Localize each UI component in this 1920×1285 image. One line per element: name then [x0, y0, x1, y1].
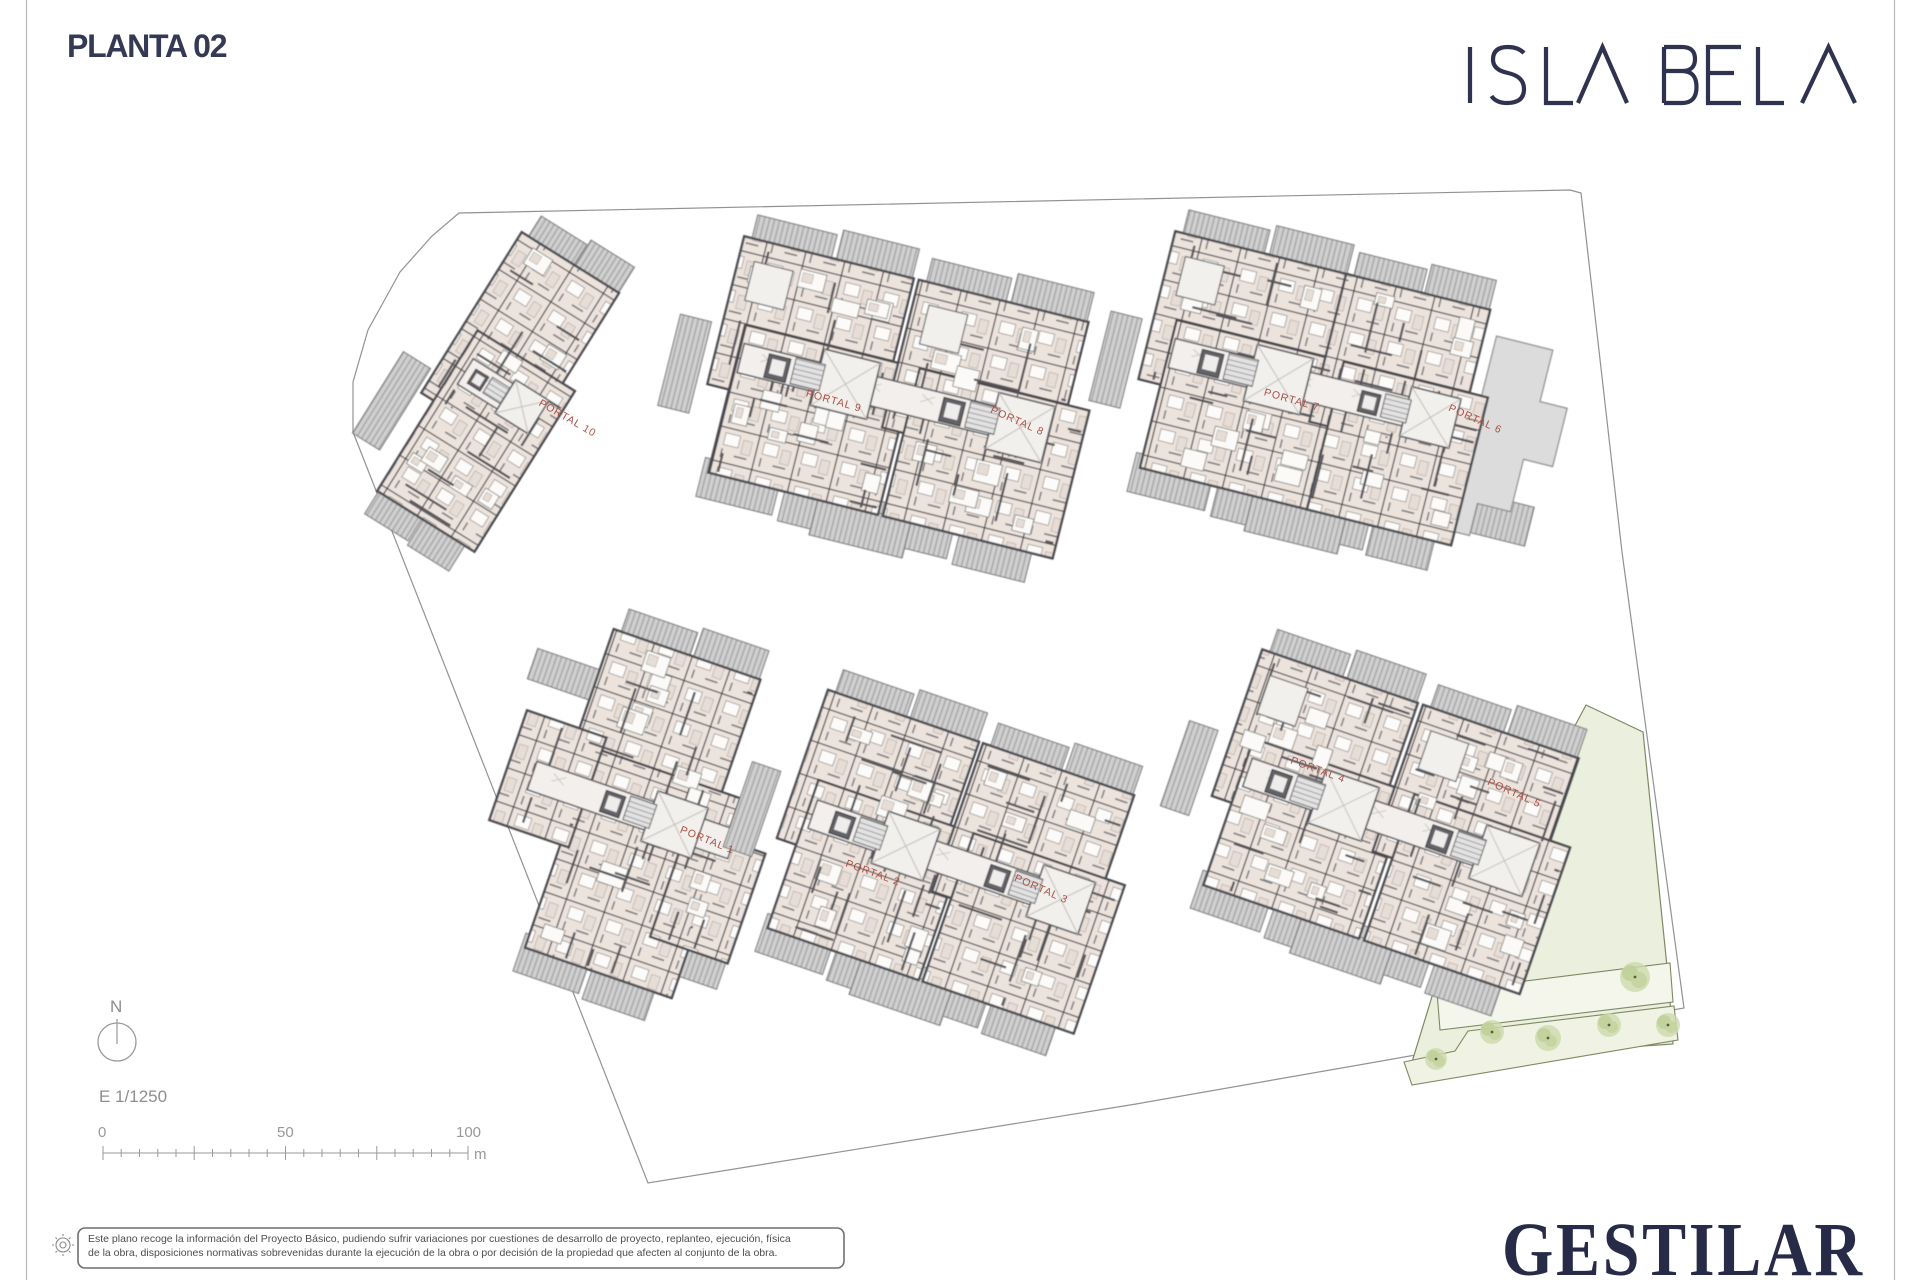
svg-text:0: 0 — [98, 1124, 106, 1141]
svg-text:100: 100 — [456, 1124, 481, 1141]
svg-text:GESTILAR: GESTILAR — [1502, 1208, 1867, 1280]
svg-text:Este plano recoge la informaci: Este plano recoge la información del Pro… — [88, 1233, 791, 1245]
svg-text:m: m — [474, 1146, 487, 1163]
svg-text:N: N — [110, 997, 122, 1016]
svg-text:50: 50 — [277, 1124, 294, 1141]
svg-text:de la obra, disposiciones norm: de la obra, disposiciones normativas sob… — [88, 1247, 777, 1259]
svg-text:E 1/1250: E 1/1250 — [99, 1087, 167, 1106]
svg-text:PLANTA 02: PLANTA 02 — [67, 28, 227, 64]
